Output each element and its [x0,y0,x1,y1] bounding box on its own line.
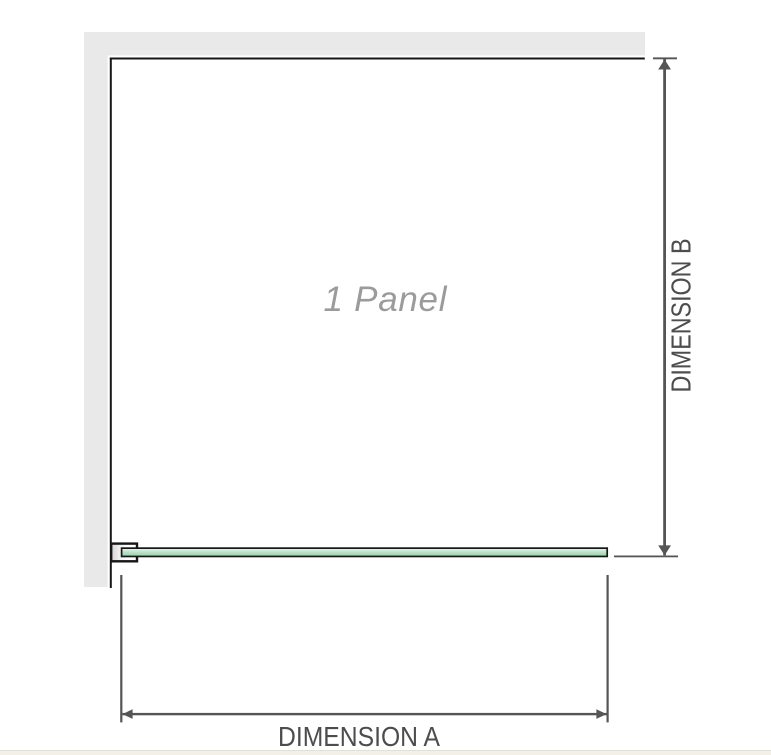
svg-text:DIMENSION B: DIMENSION B [666,239,697,393]
svg-text:1 Panel: 1 Panel [324,280,448,319]
svg-text:DIMENSION A: DIMENSION A [278,721,440,752]
